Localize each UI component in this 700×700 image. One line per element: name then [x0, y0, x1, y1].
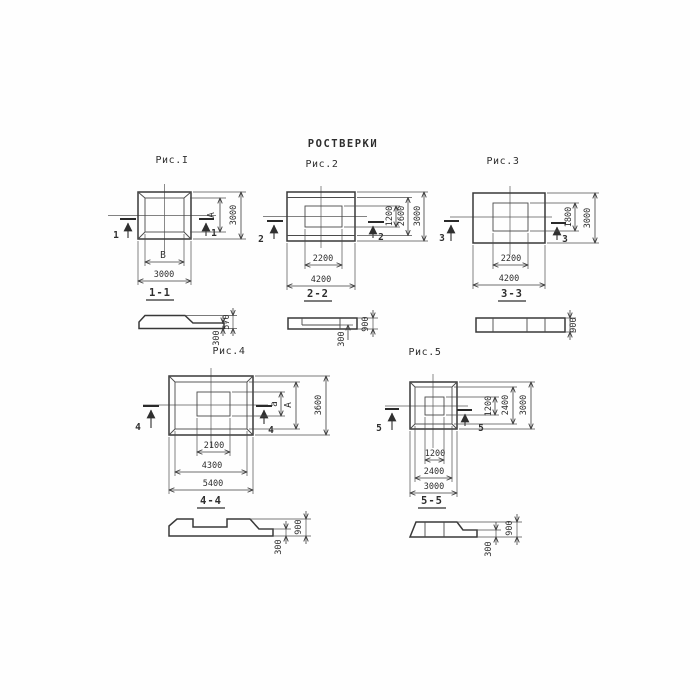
figure-2-caption: Рис.2: [305, 159, 338, 170]
figure-3-sec-total-height: 900: [569, 317, 579, 332]
figure-3-plan: [450, 186, 552, 255]
figure-3-caption: Рис.3: [486, 156, 519, 167]
figure-4-dim-h2: А: [283, 402, 294, 408]
figure-2-dim-h2: 2600: [397, 206, 407, 226]
figure-5-dim-h2: 2400: [501, 395, 511, 415]
figure-5-dim-h1: 1200: [484, 396, 494, 416]
figure-2-dim-h1: 1200: [385, 206, 395, 226]
figure-5-plan-outline: [410, 382, 457, 429]
figure-5-cut-label-left: 5: [376, 423, 382, 434]
figure-1-section-label: 1-1: [149, 287, 171, 299]
sheet-title: РОСТВЕРКИ: [308, 138, 378, 150]
figure-5-sec-edge-height: 300: [484, 541, 494, 556]
figure-1-caption: Рис.I: [155, 155, 188, 166]
figure-4-dim-h3: 3600: [314, 395, 324, 415]
figure-1-dim-outer-width: 3000: [154, 270, 174, 280]
figure-1-section-outline: [139, 316, 224, 329]
figure-5-cut-label-right: 5: [478, 423, 484, 434]
figure-5-cut-marks: 5 5: [376, 409, 484, 434]
figure-4-cut-label-left: 4: [135, 422, 141, 433]
figure-5-dimensions: 1200 2400 3000 1200 2400 3000: [410, 382, 535, 497]
figure-1-cut-label-left: 1: [113, 230, 119, 241]
figure-4-section-view: 300 900: [169, 511, 311, 555]
figure-1-dim-inner-width: В: [160, 250, 166, 261]
figure-2-plan: [263, 186, 367, 248]
figure-3-dim-inner-height: 1800: [564, 207, 574, 227]
figure-3-section-outline: [476, 318, 565, 332]
technical-drawing: РОСТВЕРКИ Рис.I 1 1 А 3000 В: [0, 0, 700, 700]
figure-4-caption: Рис.4: [212, 346, 245, 357]
figure-4-sec-total-height: 900: [294, 519, 304, 534]
figure-5-section-label: 5-5: [421, 495, 443, 507]
figure-1: Рис.I 1 1 А 3000 В 3000: [108, 155, 246, 346]
figure-4-dim-w3: 5400: [203, 479, 223, 489]
figure-4-plan: [143, 368, 268, 448]
figure-5: Рис.5 5 5 1200 2400 3000: [376, 347, 535, 557]
figure-2-sec-total-height: 900: [361, 316, 371, 331]
figure-5-sec-total-height: 900: [505, 520, 515, 535]
figure-3: Рис.3 3 3 1800 3000 2200 4200: [439, 156, 599, 340]
figure-1-section-view: 300 570: [139, 308, 237, 346]
figure-3-cut-marks: 3 3: [439, 221, 568, 245]
figure-1-cut-marks: 1 1: [113, 219, 217, 241]
figure-2-dim-inner-width: 2200: [313, 254, 333, 264]
figure-5-dim-h3: 3000: [519, 395, 529, 415]
figure-2-cut-label-left: 2: [258, 234, 264, 245]
figure-4-sec-edge-height: 300: [274, 539, 284, 554]
figure-3-cut-label-left: 3: [439, 233, 445, 244]
figure-4-dim-h1: а: [269, 401, 280, 407]
figure-3-dim-outer-height: 3000: [583, 208, 593, 228]
figure-4-section-outline: [169, 519, 273, 536]
figure-3-section-label: 3-3: [501, 288, 523, 300]
figure-1-sec-total-height: 570: [222, 314, 232, 329]
figure-2: Рис.2 2 2 1200 2600 3000 22: [258, 159, 428, 347]
figure-2-section-view: 300 900: [288, 310, 378, 347]
figure-1-sec-edge-height: 300: [212, 330, 222, 345]
figure-5-section-view: 300 900: [410, 514, 522, 557]
figure-4: Рис.4 4 4 а А 3600 2: [135, 346, 330, 555]
figure-2-section-outline: [288, 318, 357, 329]
figure-1-dim-outer-height: 3000: [229, 205, 239, 225]
figure-5-dim-w1: 1200: [425, 449, 445, 459]
figure-1-cut-label-right: 1: [211, 228, 217, 239]
figure-4-dim-w1: 2100: [204, 441, 224, 451]
figure-2-dim-outer-width: 4200: [311, 275, 331, 285]
drawing-sheet: РОСТВЕРКИ Рис.I 1 1 А 3000 В: [0, 0, 700, 700]
figure-4-section-label: 4-4: [200, 495, 222, 507]
figure-5-section-outline: [410, 522, 477, 537]
figure-3-dimensions: 1800 3000 2200 4200: [473, 193, 599, 289]
figure-3-plan-outline: [473, 193, 545, 243]
figure-5-dim-w3: 3000: [424, 482, 444, 492]
figure-3-dim-inner-width: 2200: [501, 254, 521, 264]
figure-5-dim-w2: 2400: [424, 467, 444, 477]
figure-3-dim-outer-width: 4200: [499, 274, 519, 284]
figure-4-cut-label-right: 4: [268, 425, 274, 436]
figure-3-section-view: 900: [476, 310, 579, 340]
figure-2-sec-edge-height: 300: [337, 331, 347, 346]
figure-5-caption: Рис.5: [408, 347, 441, 358]
figure-2-section-label: 2-2: [307, 288, 329, 300]
figure-1-dim-inner-height: А: [206, 212, 217, 218]
figure-2-dim-h3: 3000: [413, 206, 423, 226]
figure-5-plan: [385, 374, 468, 448]
figure-4-dim-w2: 4300: [202, 461, 222, 471]
